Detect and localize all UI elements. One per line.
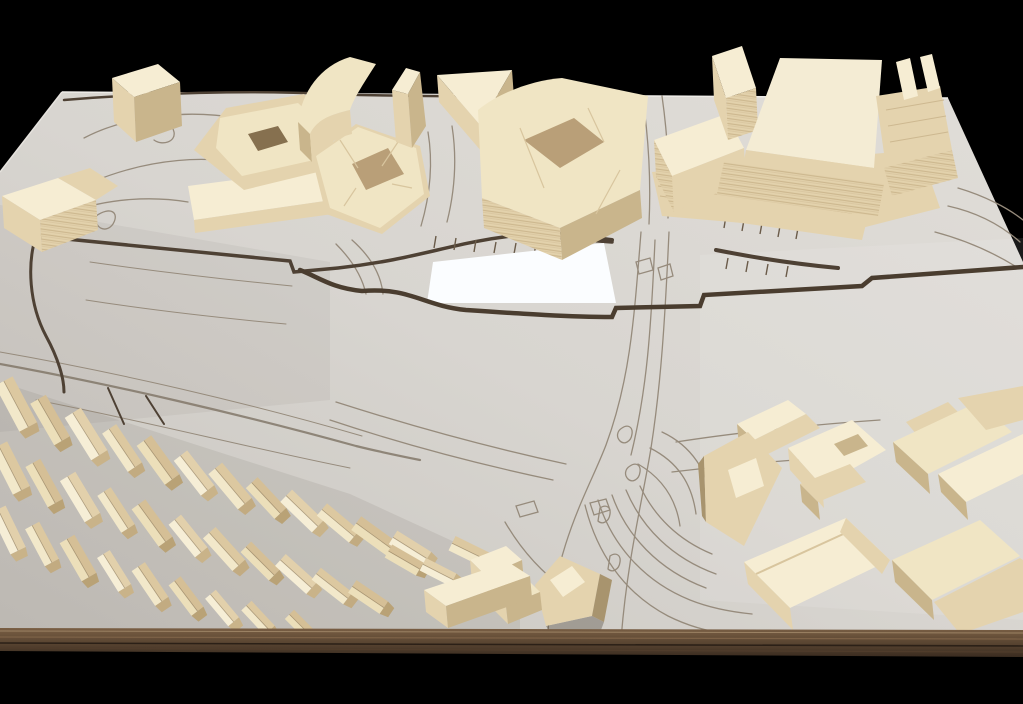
- model-photo: [0, 0, 1023, 704]
- scene-svg: [0, 0, 1023, 704]
